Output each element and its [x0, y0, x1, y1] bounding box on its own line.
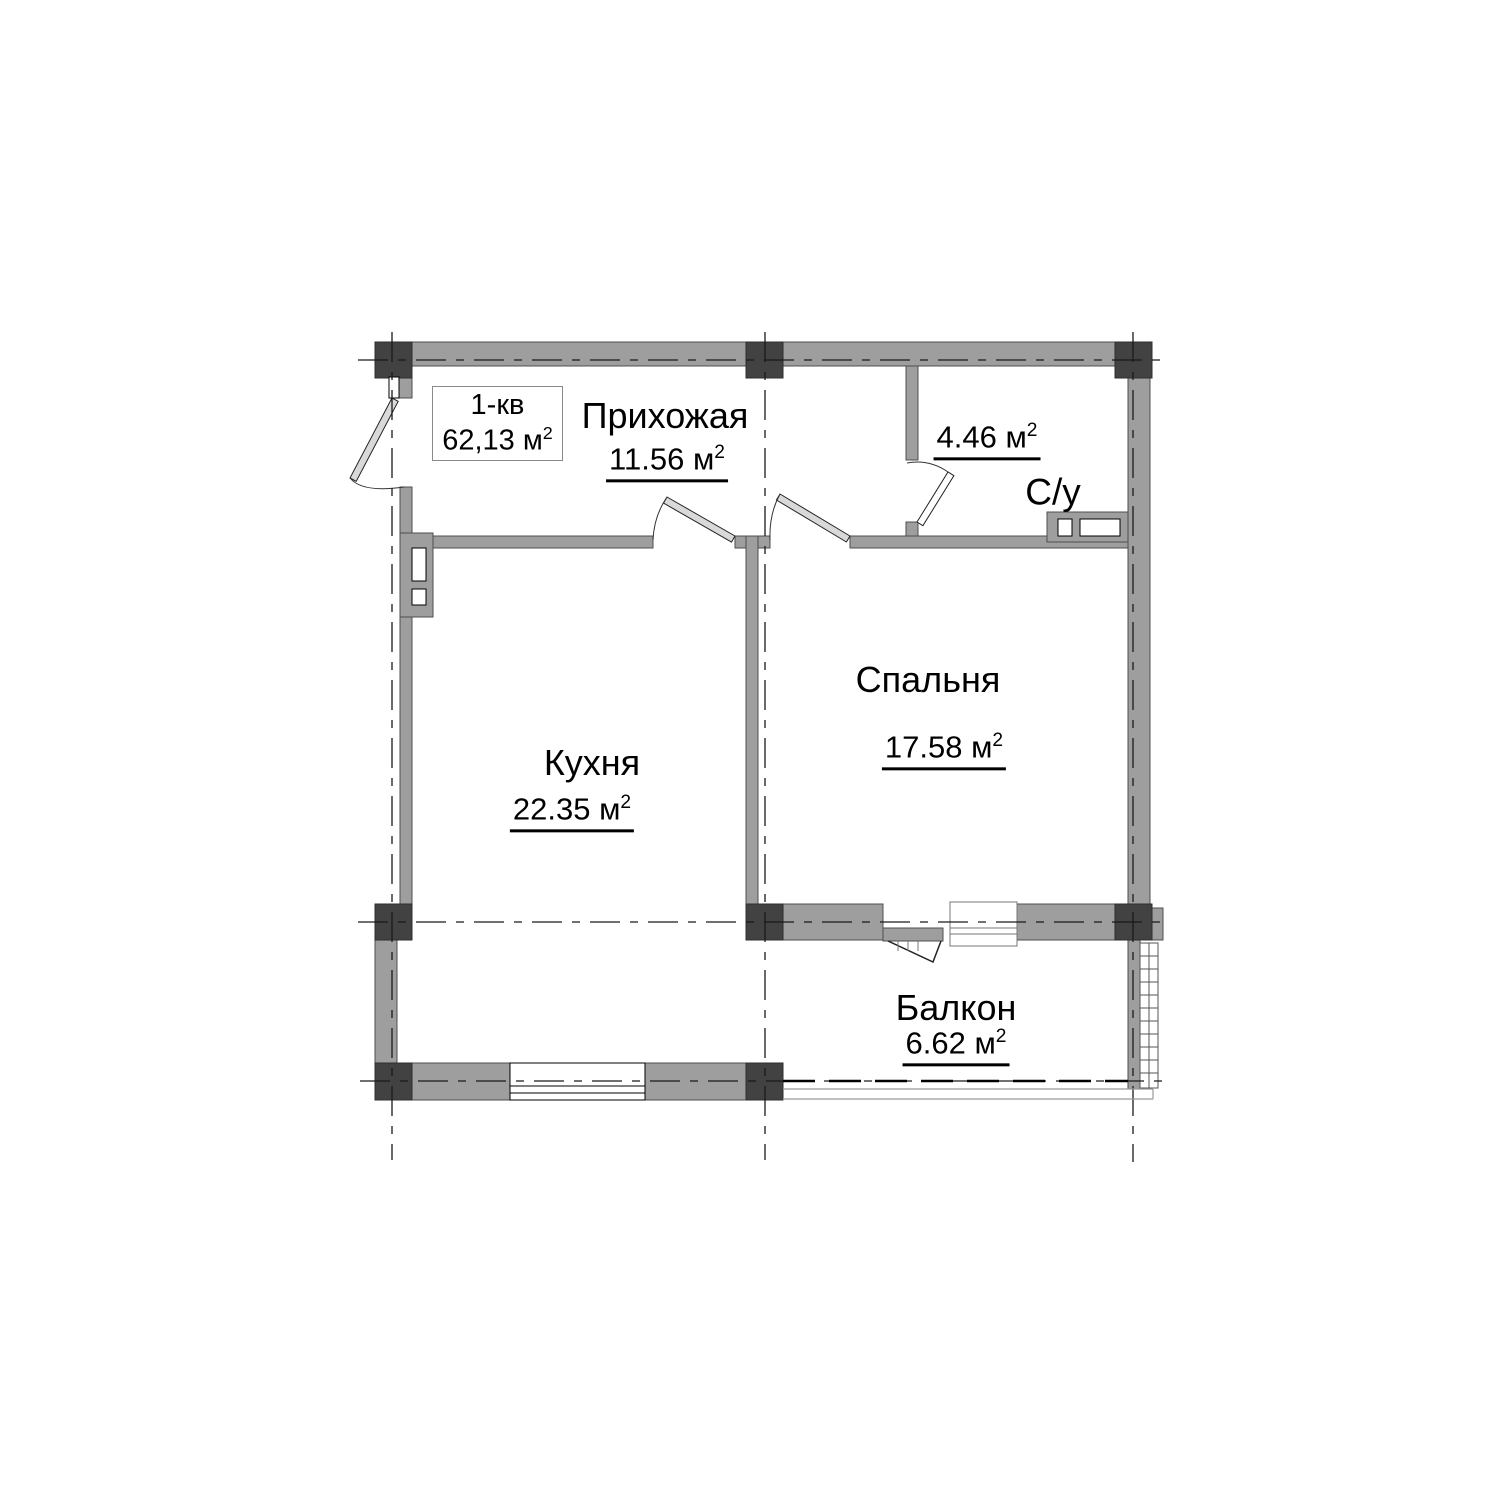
- room-area-bedroom: 17.58 м2: [882, 731, 1006, 762]
- room-area-kitchen: 22.35 м2: [510, 793, 634, 824]
- floor-plan-drawing: [0, 0, 1500, 1500]
- wall-kitchen-bedroom: [746, 536, 758, 904]
- bathroom-shaft-box-1: [1058, 519, 1072, 536]
- kitchen-shaft-box-1: [412, 548, 426, 581]
- kitchen-shaft-box-2: [412, 589, 426, 605]
- wall-left-door-jamb: [399, 377, 412, 398]
- bathroom-shaft-box-2: [1080, 519, 1120, 536]
- room-name-bathroom: С/у: [1025, 474, 1081, 511]
- unit-number: 1-кв: [471, 388, 525, 423]
- room-name-bedroom: Спальня: [856, 662, 1001, 698]
- balcony-door: [883, 928, 943, 962]
- room-area-bathroom: 4.46 м2: [934, 421, 1041, 452]
- bathroom-door: [907, 462, 954, 526]
- room-name-hallway: Прихожая: [582, 398, 749, 434]
- wall-right-balcony: [1128, 940, 1140, 1089]
- entrance-door-frame: [389, 377, 399, 398]
- wall-left-lower-balcony: [375, 940, 397, 1063]
- room-name-kitchen: Кухня: [544, 745, 640, 781]
- unit-total-area: 62,13 м2: [442, 423, 553, 458]
- room-name-balcony: Балкон: [896, 990, 1017, 1026]
- bedroom-door: [770, 494, 850, 542]
- wall-hall-kitchen: [412, 536, 653, 548]
- room-area-hallway: 11.56 м2: [606, 443, 728, 474]
- floor-plan-canvas: 1-кв 62,13 м2 Прихожая 11.56 м2 4.46 м2 …: [0, 0, 1500, 1500]
- wall-stub-right-of-column: [1152, 908, 1163, 940]
- entrance-door: [350, 398, 404, 489]
- balcony-slab-lines: [783, 1089, 1153, 1099]
- wall-bathroom-door-stub: [906, 522, 918, 536]
- wall-right: [1128, 378, 1150, 904]
- wall-bathroom-partition: [906, 366, 918, 460]
- balcony-glazing: [1140, 943, 1158, 1088]
- unit-info-box: 1-кв 62,13 м2: [432, 386, 563, 461]
- room-area-balcony: 6.62 м2: [903, 1027, 1010, 1058]
- balcony-edge: [783, 1081, 1153, 1099]
- balcony-window: [950, 902, 1017, 946]
- kitchen-door: [653, 497, 735, 542]
